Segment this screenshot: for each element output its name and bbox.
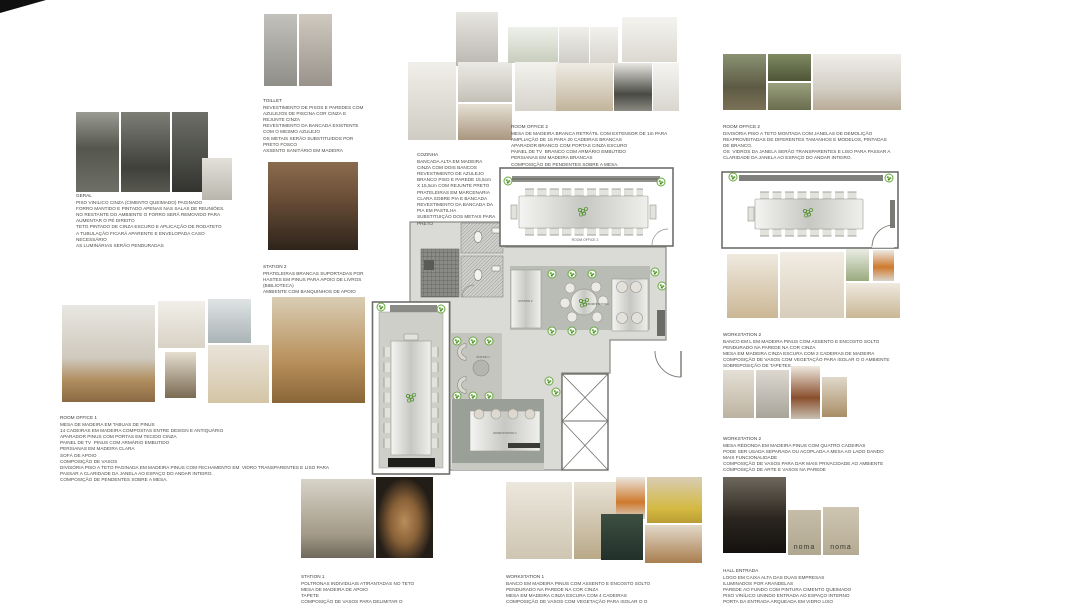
photo-white-interior-pendants (622, 17, 677, 62)
photo-wood-glass-partition (272, 297, 365, 403)
plan-elevator (562, 374, 608, 470)
text-block-station-2: STATION 2PRATELEIRAS BRANCAS SUPORTADAS … (263, 252, 393, 295)
photo-toilet-2 (299, 14, 332, 86)
photo-dining-black-table (727, 254, 778, 318)
photo-white-chair (653, 63, 679, 111)
photo-gray-corner (756, 370, 789, 418)
section-body: PISO VINILICO CINZA (CIMENTO QUEIMADO) P… (76, 200, 224, 248)
text-block-workstation-1: WORKSTATION 1BANCO EM MADEIRA PINUS COM … (506, 562, 686, 605)
section-body: BANCADA ALTA EM MADEIRA CINZA COM DOIS B… (417, 159, 495, 226)
photo-bentwood-chair (791, 366, 820, 419)
plan-label-station-1: STATION 1 (476, 355, 490, 359)
photo-tv-panel (208, 299, 251, 343)
plan-label-workstation-1: WORKSTATION 1 (493, 431, 517, 435)
text-block-toillet: TOILLETREVESTIMENTO DE PISOS E PAREDES C… (263, 86, 393, 154)
section-body: DIVISÓRIA PISO A TETO MONTADA COM JANELA… (723, 131, 890, 161)
photo-wood-dining-table (645, 525, 702, 563)
plan-room-office-1 (373, 302, 450, 474)
photo-beige-interior (723, 370, 754, 418)
section-body: LOGO EM CAIXA ALTA DAS DUAS EMPRESAS ILU… (723, 575, 851, 605)
text-block-room-office-1: ROOM OFFICE 1MESA DE MADEIRA EM TABUAS D… (60, 403, 360, 484)
noma-logo-text: noma (823, 544, 859, 551)
photo-yellow-sofa (647, 477, 702, 523)
text-block-geral: GERALPISO VINILICO CINZA (CIMENTO QUEIMA… (76, 181, 291, 249)
photo-kitchen-4 (458, 104, 512, 140)
section-body: BANCO EM MADEIRA PINUS COM ASSENTO E ENC… (506, 581, 650, 605)
section-body: POLTRONAS INDIVIDUAIS ATIRANTADAS NO TET… (301, 581, 414, 605)
photo-egg-chair (376, 477, 433, 558)
photo-light-dining (846, 283, 900, 318)
text-block-cozinha: COZINHABANCADA ALTA EM MADEIRA CINZA COM… (417, 140, 512, 227)
section-body: MESA DE MADEIRA EM TABUAS DE PINUS 14 CA… (60, 422, 329, 483)
photo-industrial-loft-1 (76, 112, 119, 192)
photo-noma-sign-2: noma (823, 507, 859, 555)
photo-tv-wall-unit (590, 27, 618, 63)
plan-fragment-room (722, 172, 898, 248)
photo-wishbone-dining (62, 305, 155, 402)
photo-kitchen-2 (408, 62, 456, 140)
photo-bench-nook (780, 252, 844, 318)
photo-white-loft-windows (813, 54, 901, 110)
photo-demolition-windows-1 (723, 54, 766, 110)
photo-orange-chair (873, 250, 894, 281)
text-block-workstation-2-a: WORKSTATION 2BANCO EM L EM MADEIRA PINUS… (723, 320, 903, 370)
photo-noma-sign-1: noma (788, 510, 821, 555)
photo-demolition-windows-2 (768, 54, 811, 81)
text-block-room-office-2-right: ROOM OFFICE 2DIVISÓRIA PISO A TETO MONTA… (723, 112, 903, 162)
photo-kitchen-1 (456, 12, 498, 66)
section-body: MESA REDONDA EM MADEIRA PINUS COM QUATRO… (723, 443, 884, 473)
section-body: MESA DE MADEIRA BRANCA RETRÁTIL COM EXTE… (511, 131, 667, 167)
photo-wood-stool (822, 377, 847, 417)
plan-label-station-2: STATION 2 (518, 299, 533, 303)
section-body: BANCO EM L EM MADEIRA PINUS COM ASSENTO … (723, 339, 889, 369)
photo-demolition-windows-3 (768, 83, 811, 110)
text-block-station-1: STATION 1POLTRONAS INDIVIDUAIS ATIRANTAD… (301, 562, 451, 605)
noma-logo-text: noma (788, 544, 821, 551)
photo-arched-dark-door (723, 477, 786, 553)
plan-label-room-office-2: ROOM OFFICE 2 (572, 238, 599, 242)
photo-toilet-1 (264, 14, 297, 86)
slide-corner-artifact (0, 0, 46, 13)
text-block-room-office-2-center: ROOM OFFICE 2MESA DE MADEIRA BRANCA RETR… (511, 112, 701, 168)
photo-plants-table (846, 249, 869, 281)
photo-white-shelving (559, 27, 589, 63)
photo-beam-interior (165, 352, 196, 398)
plan-entry-door (655, 351, 681, 377)
photo-orange-chair-small (616, 477, 645, 519)
photo-dark-green-bar (601, 514, 643, 560)
photo-blinds-vases (508, 27, 558, 63)
photo-kitchen-3 (458, 62, 512, 102)
plan-room-office-2: ROOM OFFICE 2 (500, 168, 673, 246)
plan-station-1: STATION 1 (450, 333, 502, 400)
photo-wicker-chair (614, 63, 652, 111)
plan-label-workstation-2: WORKSTATION 2 (587, 302, 609, 306)
section-body: REVESTIMENTO DE PISOS E PAREDES COM AZUL… (263, 105, 363, 153)
photo-chair-collage (158, 301, 205, 348)
photo-industrial-office-2 (121, 112, 170, 192)
photo-wood-counter (556, 63, 613, 111)
section-body: PRATELEIRAS BRANCAS SUPORTADAS POR HASTE… (263, 271, 364, 295)
photo-hanging-chairs-office (301, 479, 374, 558)
photo-beige-nook (506, 482, 572, 559)
text-block-hall-entrada: HALL ENTRADALOGO EM CAIXA ALTA DAS DUAS … (723, 556, 903, 606)
photo-light-sideboard (208, 345, 269, 403)
text-block-workstation-2-b: WORKSTATION 2MESA REDONDA EM MADEIRA PIN… (723, 424, 903, 474)
